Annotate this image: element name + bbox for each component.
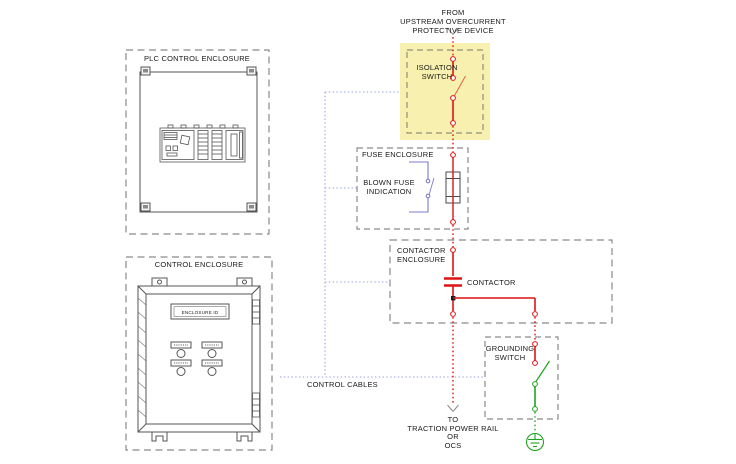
mounting-bracket — [152, 278, 252, 286]
source-label-line3: PROTECTIVE DEVICE — [400, 26, 506, 35]
indicator-light — [208, 350, 216, 358]
blown-fuse-label-line2: INDICATION — [363, 187, 415, 196]
grounding-switch-label: GROUNDING SWITCH — [486, 344, 534, 362]
plc-enclosure-title: PLC CONTROL ENCLOSURE — [144, 54, 250, 63]
contactor-enclosure-title-line1: CONTACTOR — [397, 246, 446, 255]
contact-terminal — [426, 179, 430, 183]
one-line-diagram: FROM UPSTREAM OVERCURRENT PROTECTIVE DEV… — [0, 0, 736, 464]
plc-rack-drawing — [160, 125, 245, 162]
isolation-switch-highlight — [400, 43, 490, 140]
switch-blade-open — [536, 361, 550, 382]
destination-label: TO TRACTION POWER RAIL OR OCS — [407, 416, 498, 450]
diagram-linework — [0, 0, 736, 464]
fuse-enclosure-title: FUSE ENCLOSURE — [362, 150, 434, 159]
contactor-label: CONTACTOR — [467, 278, 516, 287]
blown-fuse-lead-bottom — [409, 198, 428, 212]
plc-enclosure-drawing — [140, 67, 257, 212]
blown-fuse-label-line1: BLOWN FUSE — [363, 178, 415, 187]
mounting-foot — [152, 432, 252, 441]
isolation-switch-label-line1: ISOLATION — [416, 63, 457, 72]
isolation-switch-label-line2: SWITCH — [416, 72, 457, 81]
contactor-enclosure-title-line2: ENCLOSURE — [397, 255, 446, 264]
isolation-switch-label: ISOLATION SWITCH — [416, 63, 457, 81]
enclosure-id-label: ENCLOSURE ID — [182, 310, 219, 315]
grounding-switch-label-line2: SWITCH — [486, 353, 534, 362]
indicator-light — [177, 350, 185, 358]
highlight-fill — [400, 43, 490, 140]
earth-ground-icon — [527, 434, 544, 451]
source-label-line2: UPSTREAM OVERCURRENT — [400, 17, 506, 26]
control-enclosure-title: CONTROL ENCLOSURE — [126, 260, 272, 269]
destination-label-line4: OCS — [407, 442, 498, 451]
blown-fuse-label: BLOWN FUSE INDICATION — [363, 178, 415, 196]
source-label-line1: FROM — [400, 8, 506, 17]
contactor-enclosure-title: CONTACTOR ENCLOSURE — [397, 246, 446, 264]
blown-fuse-lead-top — [409, 162, 428, 179]
control-cables-label: CONTROL CABLES — [307, 380, 378, 389]
arrow-down-icon — [448, 405, 459, 412]
indicator-light — [208, 368, 216, 376]
fuse-symbol — [446, 153, 460, 225]
grounding-switch-label-line1: GROUNDING — [486, 344, 534, 353]
source-label: FROM UPSTREAM OVERCURRENT PROTECTIVE DEV… — [400, 8, 506, 35]
indicator-light — [177, 368, 185, 376]
control-enclosure-drawing — [138, 278, 260, 441]
